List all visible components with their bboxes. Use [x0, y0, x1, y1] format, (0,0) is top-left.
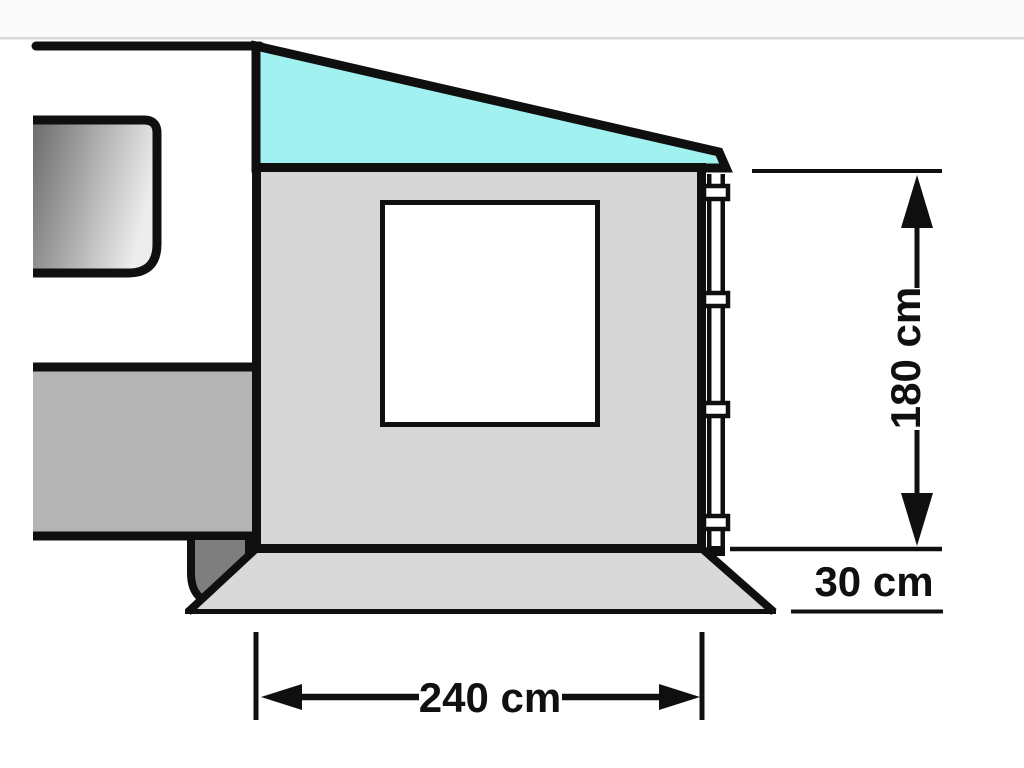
panel-window [383, 203, 598, 425]
caravan-window [33, 120, 157, 273]
ground-clearance-label: 30 cm [814, 558, 933, 605]
width-dimension-label: 240 cm [419, 674, 561, 721]
width-arrowhead-left [261, 684, 302, 710]
top-divider-line [0, 37, 1024, 40]
height-arrowhead-down [901, 493, 933, 546]
pole-clamp-connector [704, 516, 728, 529]
pole-clamp-connector [704, 186, 728, 199]
pole-clamp-connector [704, 403, 728, 416]
diagram-canvas: 180 cm 30 cm 240 cm [0, 0, 1024, 768]
awning-dimension-diagram: 180 cm 30 cm 240 cm [0, 0, 1024, 768]
awning-roof-wedge [256, 46, 726, 168]
top-margin-band [0, 0, 1024, 37]
height-arrowhead-up [901, 175, 933, 228]
awning-ground-skirt [186, 547, 774, 612]
caravan-lower-band [33, 368, 261, 535]
height-dimension-label: 180 cm [882, 287, 929, 429]
pole-clamp-connector [704, 293, 728, 306]
width-arrowhead-right [659, 684, 700, 710]
rear-pole-channel [712, 174, 721, 546]
